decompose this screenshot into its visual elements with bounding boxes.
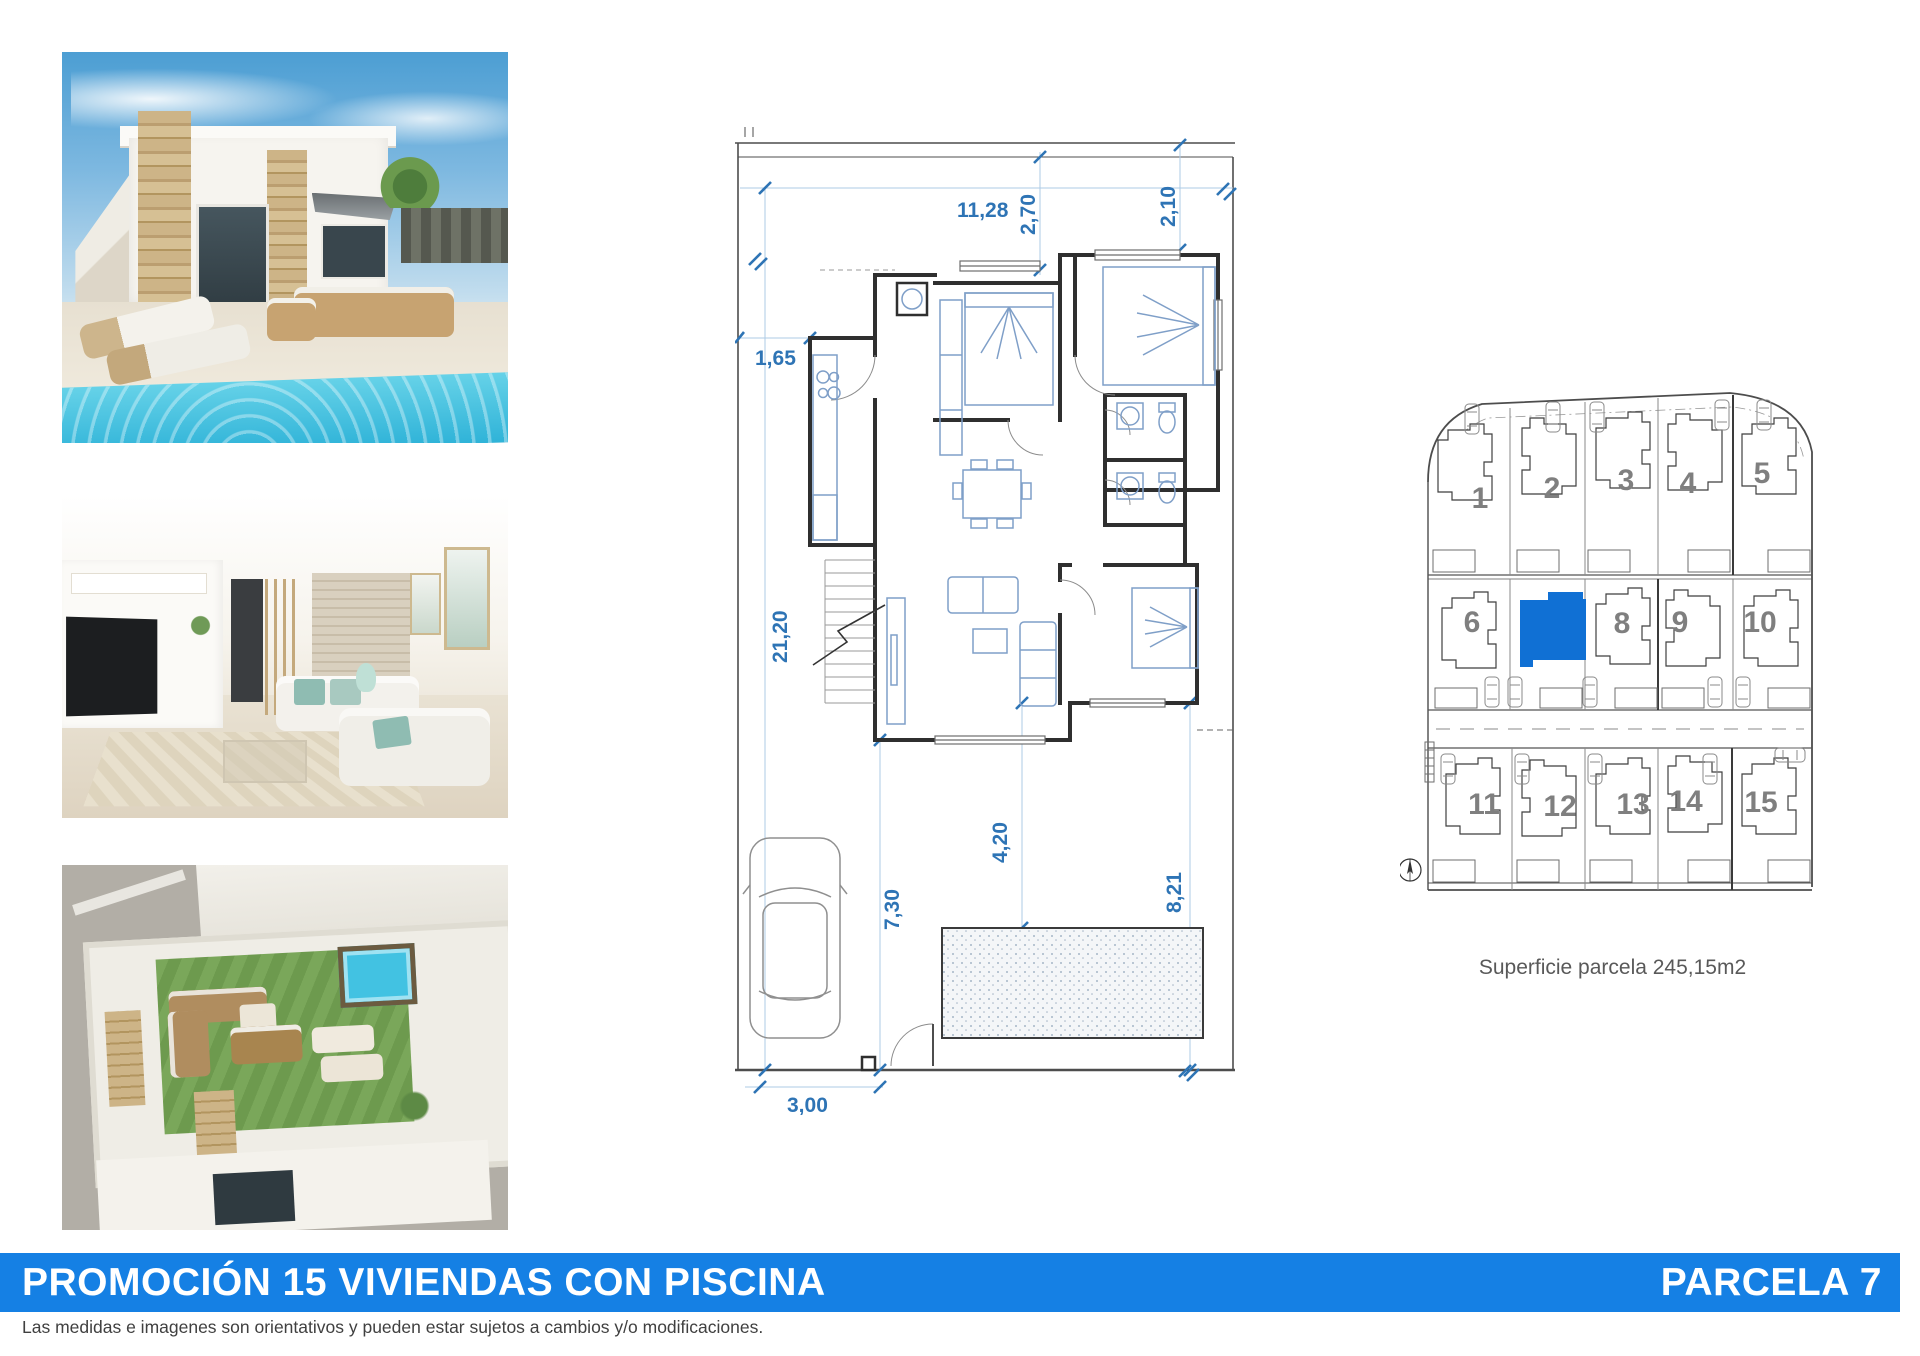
plot-number: 12 [1543, 790, 1576, 823]
stone-pillar [138, 111, 192, 322]
dim-top-width: 11,28 [957, 199, 1009, 222]
highlighted-plot-7 [1520, 592, 1586, 667]
dining-table [953, 460, 1031, 528]
palm-tree [374, 154, 445, 209]
plot-number: 15 [1744, 786, 1777, 819]
dim-side-offset: 1,65 [755, 347, 796, 370]
wall-art [444, 547, 490, 650]
plot-number: 6 [1464, 606, 1481, 639]
dim-front-depth: 7,30 [881, 889, 904, 930]
tv-unit [887, 598, 905, 724]
plot-number: 9 [1672, 606, 1689, 639]
coffee-table [223, 740, 307, 783]
plot-number: 10 [1743, 606, 1776, 639]
banner-title: PROMOCIÓN 15 VIVIENDAS CON PISCINA [22, 1261, 826, 1305]
rattan-sofa [231, 1024, 304, 1064]
dim-top-depth-1: 2,70 [1017, 194, 1040, 235]
bed [965, 293, 1053, 405]
table-lamp [356, 663, 376, 692]
title-banner: PROMOCIÓN 15 VIVIENDAS CON PISCINA PARCE… [0, 1253, 1900, 1312]
photo-villa-exterior [62, 52, 508, 443]
rattan-armchair [267, 298, 316, 341]
floor-plan-drawing: 11,28 2,70 2,10 1,65 21,20 4,20 7,30 8,2… [735, 115, 1240, 1115]
banner-parcel-label: PARCELA 7 [1661, 1261, 1882, 1305]
rattan-corner-sofa [167, 1010, 211, 1078]
plot-number: 14 [1669, 785, 1703, 818]
dim-plot-depth: 21,20 [769, 610, 792, 663]
sun-lounger [320, 1053, 384, 1082]
plot-number: 5 [1754, 457, 1771, 490]
bed [1132, 588, 1198, 668]
cloud [71, 68, 339, 131]
plot-number: 2 [1544, 472, 1561, 505]
doorway [231, 579, 262, 702]
cushion [372, 716, 411, 750]
stone-pillar [104, 1010, 145, 1107]
plot-number: 3 [1618, 464, 1635, 497]
photo-roof-terrace [62, 865, 508, 1230]
tv-screen [67, 616, 158, 716]
plot-number: 1 [1472, 482, 1489, 515]
cushion [294, 679, 325, 705]
car-outline [743, 838, 847, 1038]
site-plan-drawing: 1 2 3 4 5 6 8 9 10 11 12 13 14 15 [1400, 390, 1825, 895]
pool-plan [942, 928, 1203, 1038]
background-fence [401, 208, 508, 263]
plot-number: 11 [1468, 788, 1500, 821]
dim-rear-garden: 8,21 [1163, 872, 1186, 913]
north-arrow-icon [1400, 859, 1421, 881]
window [321, 224, 387, 279]
dim-pool-offset: 4,20 [989, 822, 1012, 863]
window [212, 1170, 295, 1225]
plot-number: 4 [1680, 467, 1697, 500]
photo-living-room [62, 495, 508, 818]
windows [935, 250, 1222, 744]
hanging-plant [187, 611, 214, 640]
sofa [339, 708, 491, 786]
dim-top-depth-2: 2,10 [1157, 186, 1180, 227]
sun-lounger [311, 1024, 375, 1053]
siteplan-caption: Superficie parcela 245,15m2 [1400, 956, 1825, 980]
plants [392, 1084, 437, 1128]
plot-number: 13 [1616, 788, 1649, 821]
footer-disclaimer: Las medidas e imagenes son orientativos … [22, 1317, 763, 1338]
wardrobe [940, 300, 962, 455]
plot-number: 8 [1614, 607, 1631, 640]
sofa [948, 577, 1056, 706]
brochure-page: 11,28 2,70 2,10 1,65 21,20 4,20 7,30 8,2… [0, 0, 1920, 1356]
wall-art [410, 573, 441, 635]
shelf [71, 573, 207, 594]
rattan-sofa [294, 287, 455, 338]
coffee-table [973, 629, 1007, 653]
bed [1103, 267, 1215, 385]
dim-drive-width: 3,00 [787, 1094, 828, 1115]
jacuzzi [337, 943, 417, 1008]
